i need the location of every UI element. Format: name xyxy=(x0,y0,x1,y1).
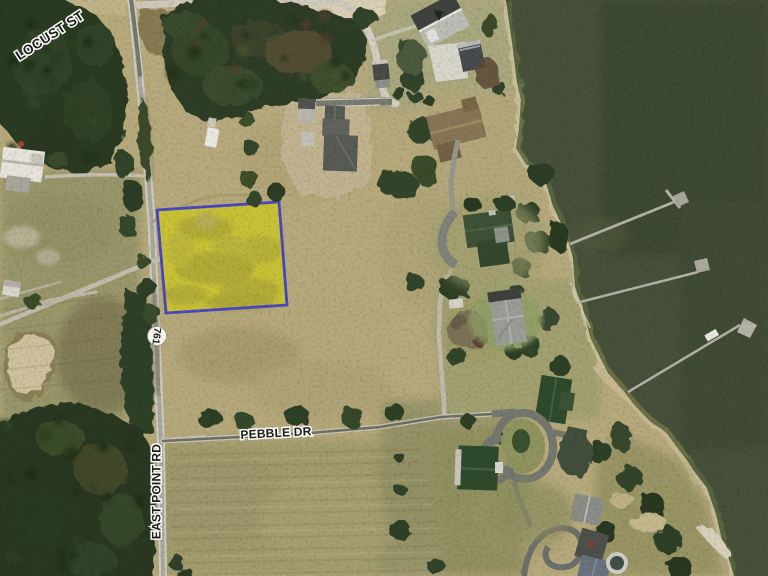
svg-text:761: 761 xyxy=(149,327,162,345)
svg-text:EAST POINT RD: EAST POINT RD xyxy=(150,444,164,539)
